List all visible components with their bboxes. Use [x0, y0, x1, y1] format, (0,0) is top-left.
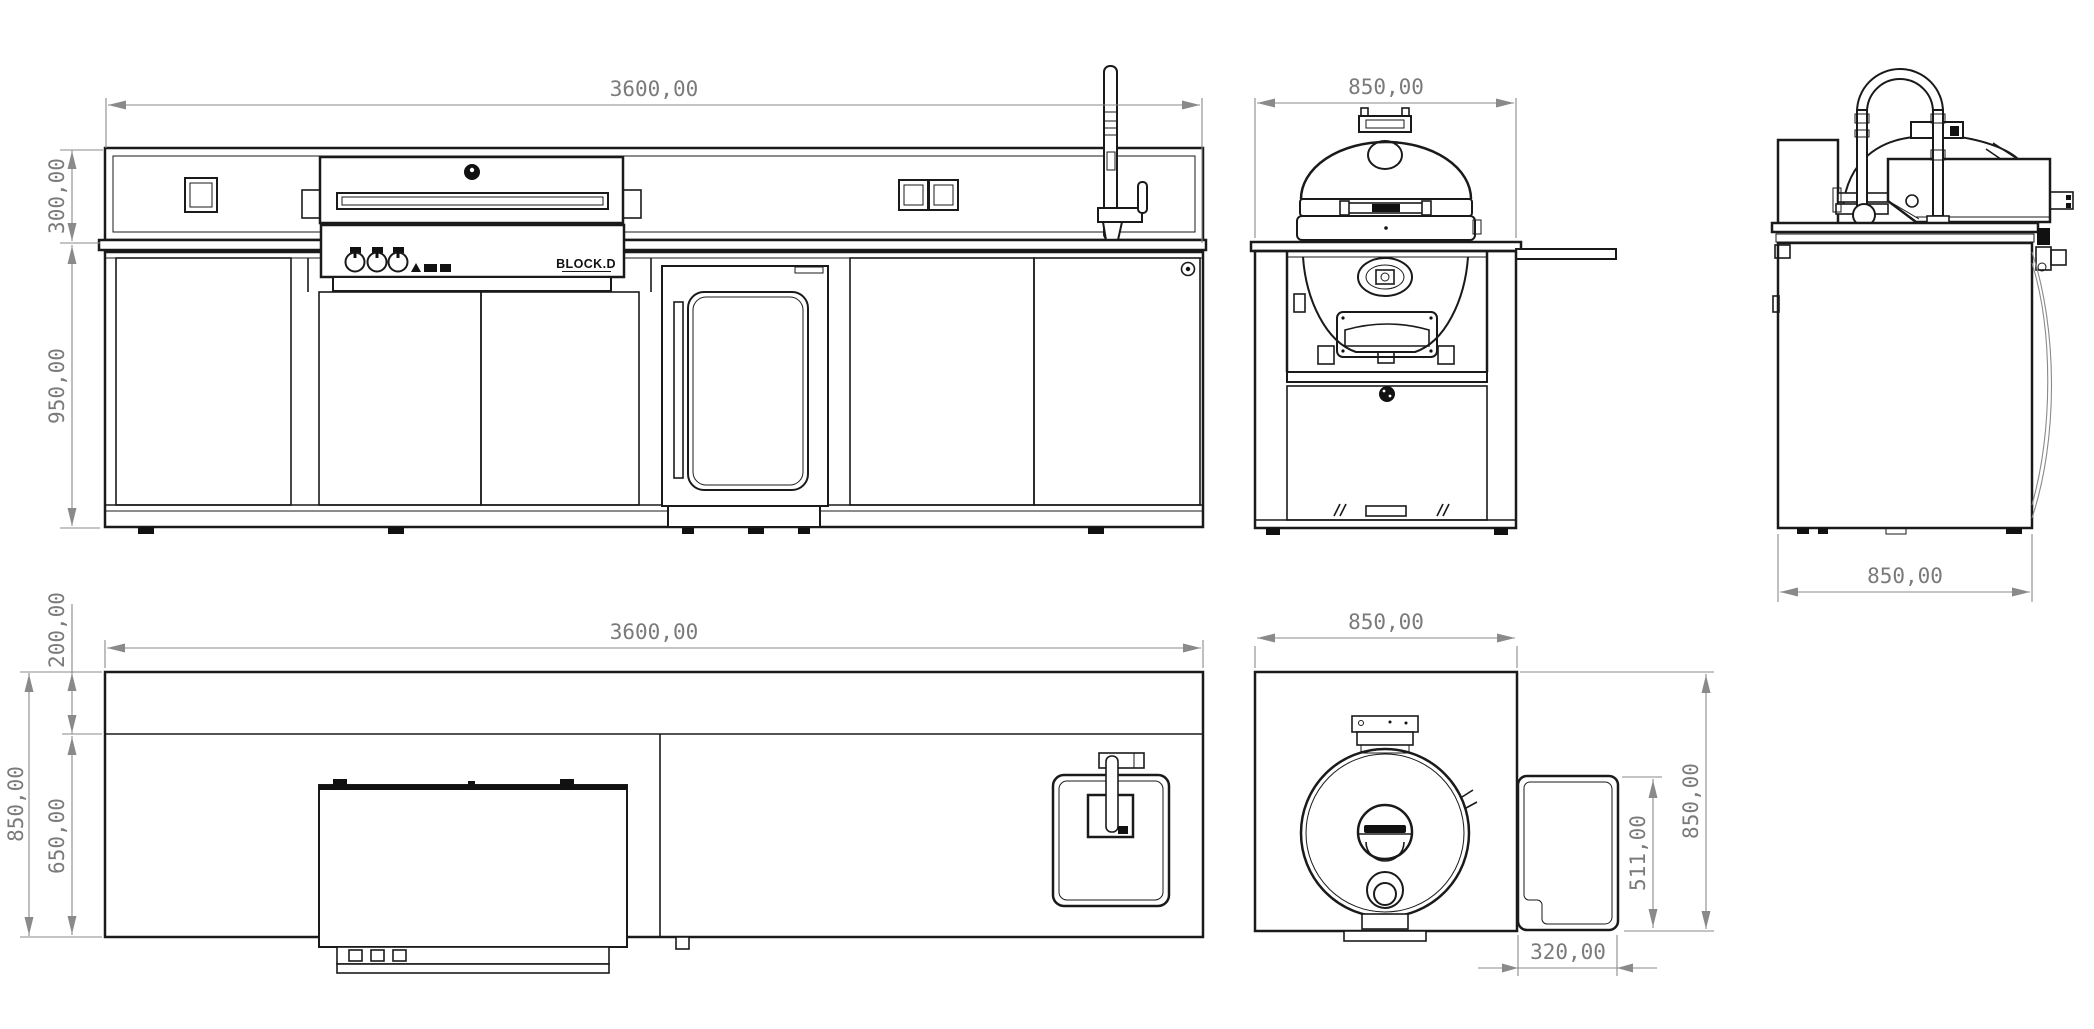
drawing-sheet: BLOCK.D 3600,00 300,00 950,00: [0, 0, 2094, 1029]
backsplash-side: [1778, 140, 1838, 225]
drawer-knob-icon: [1379, 386, 1395, 402]
dim-kamado-plan-depth: 850,00: [1679, 763, 1703, 839]
dim-shelf-width: 320,00: [1530, 940, 1606, 964]
dim-kamado-width: 850,00: [1348, 75, 1424, 99]
dim-backsplash-height: 300,00: [45, 158, 69, 234]
dim-body-height: 950,00: [45, 348, 69, 424]
built-in-grill: BLOCK.D: [302, 157, 641, 291]
dim-kamado-plan-width: 850,00: [1348, 610, 1424, 634]
kamado-top-vent: [1359, 116, 1411, 132]
faucet-arm-plan: [1106, 756, 1118, 832]
brand-label: BLOCK.D: [556, 257, 616, 271]
front-edge-tab: [676, 937, 689, 949]
dim-plan-counter-depth: 650,00: [45, 798, 69, 874]
grill-drip-tray: [333, 277, 611, 291]
dim-side-depth: 850,00: [1867, 564, 1943, 588]
grill-plan: [319, 779, 627, 973]
dim-shelf-depth: 511,00: [1626, 815, 1650, 891]
dim-front-width: 3600,00: [610, 77, 699, 101]
technical-drawing: BLOCK.D 3600,00 300,00 950,00: [0, 0, 2094, 1029]
grill-hood-side: [1888, 159, 2073, 222]
dim-plan-width: 3600,00: [610, 620, 699, 644]
countertop-side: [1772, 223, 2038, 232]
outdoor-fridge: [662, 266, 828, 527]
fridge-handle: [674, 302, 683, 478]
kamado-countertop: [1251, 242, 1521, 251]
dim-plan-backsplash-depth: 200,00: [45, 592, 69, 668]
dim-plan-total-depth: 850,00: [4, 766, 28, 842]
countertop: [99, 240, 1206, 250]
kamado-handle: [1372, 204, 1400, 212]
side-shelf-edge: [1516, 249, 1616, 259]
